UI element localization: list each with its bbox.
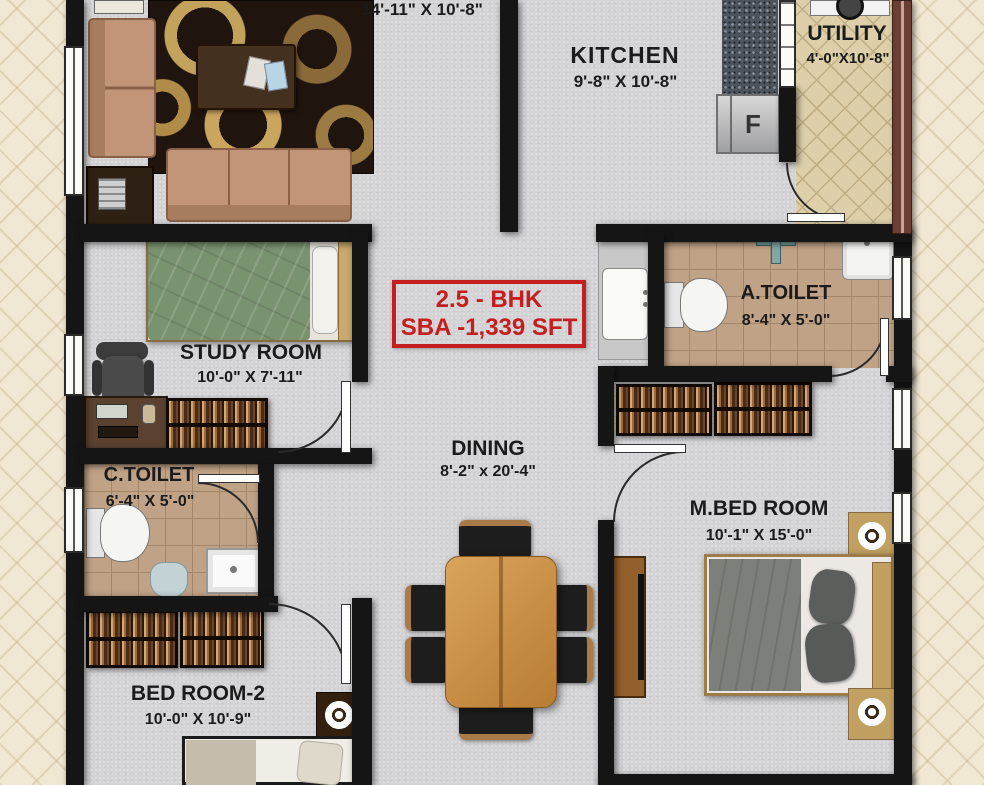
study-room-dims: 10'-0" X 7'-11" (188, 369, 312, 387)
area-badge: 2.5 - BHK SBA -1,339 SFT (392, 280, 586, 348)
ctoilet-label: C.TOILET (92, 464, 206, 487)
ctoilet-door-leaf (198, 474, 260, 483)
utility-door-leaf (787, 213, 845, 222)
floor-plan: F (0, 0, 984, 785)
utility-dims: 4'-0"X10'-8" (796, 50, 900, 67)
living-room-dims: 14'-11" X 10'-8" (348, 0, 496, 20)
mbed-dims: 10'-1" X 15'-0" (697, 527, 821, 545)
bedroom2-label: BED ROOM-2 (122, 682, 274, 706)
mbed-door-leaf (614, 444, 686, 453)
bedroom2-door-leaf (341, 604, 351, 684)
ctoilet-dims: 6'-4" X 5'-0" (96, 493, 204, 511)
utility-label: UTILITY (798, 22, 896, 46)
kitchen-dims: 9'-8" X 10'-8" (553, 72, 698, 92)
study-room-label: STUDY ROOM (172, 341, 330, 365)
dining-label: DINING (434, 437, 542, 461)
study-door-leaf (341, 381, 351, 453)
door-swing-arcs (0, 0, 984, 785)
dining-dims: 8'-2" x 20'-4" (428, 463, 548, 481)
mbed-label: M.BED ROOM (686, 497, 832, 521)
atoilet-door-leaf (880, 318, 889, 376)
atoilet-dims: 8'-4" X 5'-0" (733, 312, 839, 330)
badge-line1: 2.5 - BHK (436, 286, 543, 314)
bedroom2-dims: 10'-0" X 10'-9" (130, 711, 266, 729)
atoilet-label: A.TOILET (728, 282, 844, 305)
badge-line2: SBA -1,339 SFT (401, 314, 578, 342)
kitchen-label: KITCHEN (560, 42, 690, 69)
